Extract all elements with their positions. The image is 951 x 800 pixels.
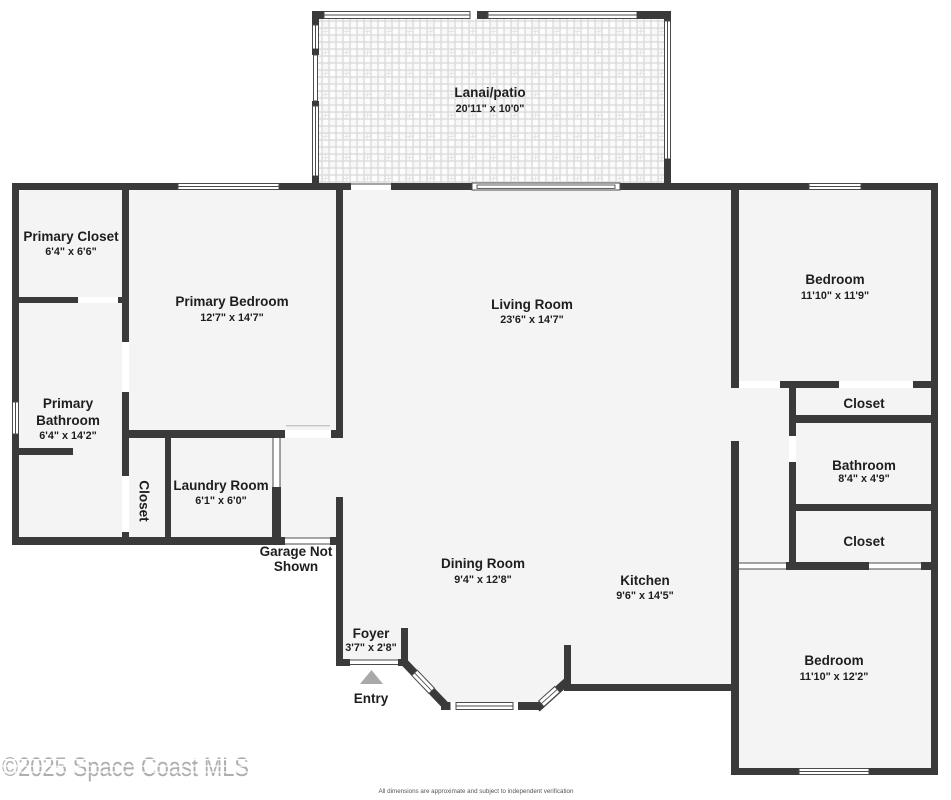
svg-text:Laundry Room: Laundry Room	[173, 478, 268, 493]
svg-text:Kitchen: Kitchen	[620, 573, 670, 588]
svg-text:Shown: Shown	[274, 559, 318, 574]
svg-text:Dining Room: Dining Room	[441, 556, 525, 571]
svg-text:Garage Not: Garage Not	[260, 544, 333, 559]
svg-text:All dimensions are approximate: All dimensions are approximate and subje…	[379, 788, 574, 795]
svg-text:Closet: Closet	[137, 480, 152, 522]
svg-text:Bathroom: Bathroom	[832, 458, 896, 473]
svg-text:11'10" x 11'9": 11'10" x 11'9"	[801, 290, 869, 302]
svg-text:Bedroom: Bedroom	[805, 272, 864, 287]
svg-text:Lanai/patio: Lanai/patio	[454, 85, 525, 100]
svg-text:3'7" x 2'8": 3'7" x 2'8"	[345, 642, 396, 654]
svg-text:Bathroom: Bathroom	[36, 413, 100, 428]
svg-text:Foyer: Foyer	[353, 626, 391, 641]
svg-text:9'6" x 14'5": 9'6" x 14'5"	[616, 590, 673, 602]
svg-text:6'4" x 6'6": 6'4" x 6'6"	[45, 246, 96, 258]
svg-text:20'11" x 10'0": 20'11" x 10'0"	[456, 103, 525, 115]
svg-text:8'4" x 4'9": 8'4" x 4'9"	[838, 473, 889, 485]
svg-text:11'10" x 12'2": 11'10" x 12'2"	[800, 671, 869, 683]
svg-text:6'1" x 6'0": 6'1" x 6'0"	[195, 495, 246, 507]
svg-text:12'7" x 14'7": 12'7" x 14'7"	[200, 312, 263, 324]
svg-text:Living Room: Living Room	[491, 297, 573, 312]
svg-text:Closet: Closet	[843, 396, 885, 411]
svg-text:©2025 Space Coast MLS: ©2025 Space Coast MLS	[2, 752, 249, 782]
svg-text:Primary: Primary	[43, 396, 94, 411]
svg-text:6'4" x 14'2": 6'4" x 14'2"	[39, 430, 96, 442]
svg-text:Entry: Entry	[354, 691, 389, 706]
svg-text:Primary Bedroom: Primary Bedroom	[175, 294, 288, 309]
svg-text:Primary Closet: Primary Closet	[23, 229, 119, 244]
svg-text:Bedroom: Bedroom	[804, 653, 863, 668]
svg-text:9'4" x 12'8": 9'4" x 12'8"	[454, 574, 511, 586]
svg-text:Closet: Closet	[843, 534, 885, 549]
svg-text:23'6" x 14'7": 23'6" x 14'7"	[500, 314, 563, 326]
